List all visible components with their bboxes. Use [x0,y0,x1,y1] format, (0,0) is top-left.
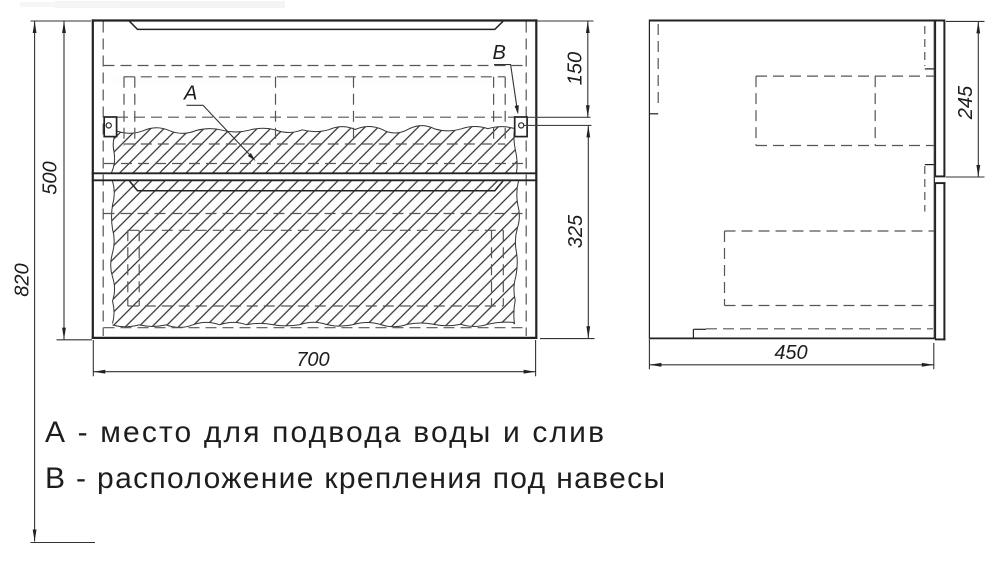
svg-text:820: 820 [12,263,34,296]
svg-text:700: 700 [296,349,329,371]
svg-text:A: A [183,83,197,105]
svg-text:325: 325 [565,214,587,248]
svg-text:500: 500 [40,161,62,194]
svg-text:150: 150 [565,52,587,85]
svg-text:В - расположение крепления под: В - расположение крепления под навесы [45,462,665,495]
svg-text:245: 245 [955,85,977,120]
svg-text:450: 450 [774,342,807,364]
svg-text:B: B [493,42,506,64]
